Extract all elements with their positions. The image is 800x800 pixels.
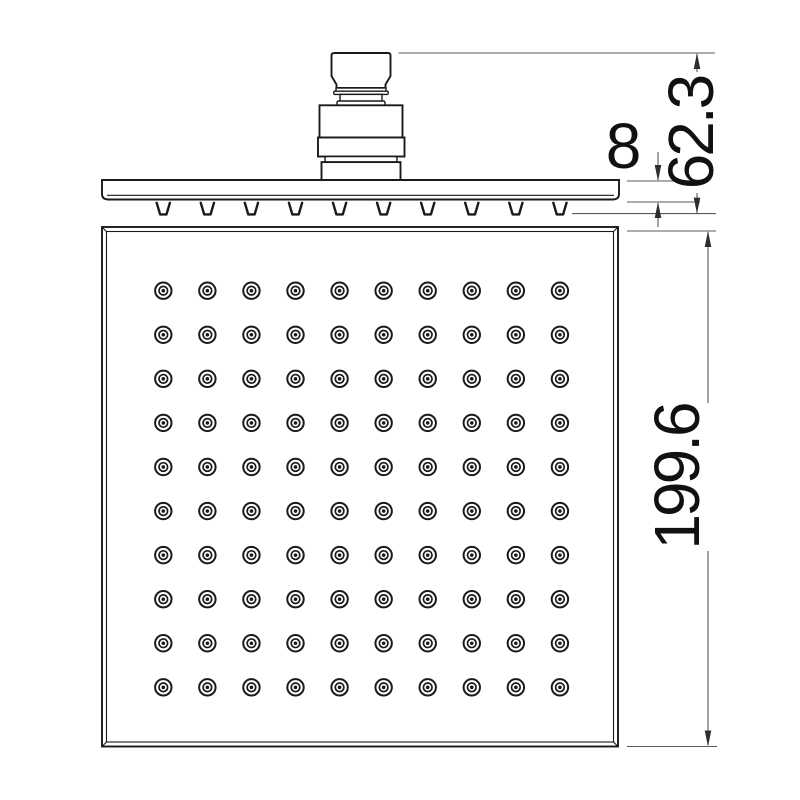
- nozzle: [162, 641, 166, 645]
- side-view: [102, 53, 619, 214]
- dim-label-plate-thickness: 8: [606, 114, 639, 178]
- nozzle: [426, 686, 430, 690]
- nozzle: [426, 289, 430, 293]
- technical-drawing-canvas: 62.3 8 199.6: [0, 0, 800, 800]
- nozzle: [558, 553, 562, 557]
- nozzle-tooth: [333, 203, 346, 215]
- nozzle: [426, 597, 430, 601]
- nozzle: [162, 686, 166, 690]
- nozzle: [514, 333, 518, 337]
- nozzle: [206, 641, 210, 645]
- nozzle: [382, 641, 386, 645]
- nozzle: [382, 686, 386, 690]
- arrow-up-icon: [694, 53, 701, 69]
- nozzle: [514, 465, 518, 469]
- nozzle: [338, 333, 342, 337]
- nozzle: [294, 509, 298, 513]
- nozzle: [382, 465, 386, 469]
- nozzle: [162, 333, 166, 337]
- nozzle: [338, 289, 342, 293]
- arrow-down-icon: [705, 731, 712, 747]
- nozzle: [294, 597, 298, 601]
- arrow-up-icon: [705, 231, 712, 247]
- nozzle: [294, 465, 298, 469]
- nozzle: [382, 377, 386, 381]
- nozzle: [426, 421, 430, 425]
- nozzle: [338, 377, 342, 381]
- nozzle: [294, 289, 298, 293]
- nozzle: [514, 421, 518, 425]
- nozzle: [558, 509, 562, 513]
- nozzle: [470, 597, 474, 601]
- nozzle: [470, 421, 474, 425]
- nozzle: [206, 377, 210, 381]
- nozzle: [250, 465, 254, 469]
- nozzle: [206, 509, 210, 513]
- nozzle: [558, 377, 562, 381]
- arrow-up-icon: [655, 202, 662, 218]
- nozzle: [162, 509, 166, 513]
- nozzle: [294, 333, 298, 337]
- nozzle: [426, 377, 430, 381]
- nozzle: [470, 289, 474, 293]
- nozzle: [558, 686, 562, 690]
- nozzle: [470, 509, 474, 513]
- nozzle: [250, 641, 254, 645]
- front-view: [102, 227, 618, 747]
- nozzle-tooth: [157, 203, 170, 215]
- nozzle: [514, 597, 518, 601]
- connector-body: [320, 105, 403, 137]
- nozzle: [514, 641, 518, 645]
- nozzle: [162, 377, 166, 381]
- nozzle-teeth-row: [157, 203, 567, 215]
- nozzle: [426, 641, 430, 645]
- nozzle: [206, 465, 210, 469]
- nozzle: [206, 289, 210, 293]
- nozzle: [250, 289, 254, 293]
- nozzle: [250, 333, 254, 337]
- nozzle: [338, 641, 342, 645]
- nozzle: [382, 509, 386, 513]
- nozzle: [514, 377, 518, 381]
- nozzle-tooth: [509, 203, 522, 215]
- nozzle: [470, 333, 474, 337]
- dim-label-face-size: 199.6: [645, 404, 709, 549]
- nozzle: [382, 289, 386, 293]
- nozzle: [382, 333, 386, 337]
- nozzle: [294, 686, 298, 690]
- nozzle: [470, 377, 474, 381]
- nozzle: [514, 289, 518, 293]
- nozzle: [162, 465, 166, 469]
- nozzle-tooth: [421, 203, 434, 215]
- nozzle: [338, 597, 342, 601]
- nozzle: [470, 465, 474, 469]
- nozzle: [206, 553, 210, 557]
- nozzle: [294, 377, 298, 381]
- connector-flange: [318, 138, 405, 157]
- nozzle: [250, 509, 254, 513]
- nozzle-tooth: [465, 203, 478, 215]
- nozzle: [558, 289, 562, 293]
- nozzle-tooth: [201, 203, 214, 215]
- nozzle: [470, 686, 474, 690]
- nozzle: [382, 553, 386, 557]
- nozzle: [558, 421, 562, 425]
- nozzle: [382, 421, 386, 425]
- nozzle: [426, 553, 430, 557]
- nozzle: [558, 641, 562, 645]
- nozzle: [294, 641, 298, 645]
- nozzle: [382, 597, 386, 601]
- nozzle: [470, 553, 474, 557]
- nozzle: [206, 597, 210, 601]
- nozzle: [250, 377, 254, 381]
- nozzle: [294, 421, 298, 425]
- nozzle: [338, 421, 342, 425]
- nozzle: [250, 686, 254, 690]
- nozzle-tooth: [289, 203, 302, 215]
- nozzle-tooth: [553, 203, 566, 215]
- nozzle: [250, 421, 254, 425]
- nozzle: [426, 509, 430, 513]
- nozzle: [338, 509, 342, 513]
- face-outer-border: [102, 227, 618, 747]
- nozzle: [514, 509, 518, 513]
- nozzle: [206, 421, 210, 425]
- connector-cap: [332, 53, 391, 88]
- dim-label-connector-height: 62.3: [659, 77, 723, 190]
- nozzle: [206, 333, 210, 337]
- nozzle: [514, 686, 518, 690]
- nozzle: [558, 597, 562, 601]
- nozzle: [338, 686, 342, 690]
- nozzle: [514, 553, 518, 557]
- nozzle: [470, 641, 474, 645]
- nozzle: [426, 465, 430, 469]
- nozzle: [162, 289, 166, 293]
- head-plate-profile: [102, 180, 619, 200]
- nozzle: [338, 553, 342, 557]
- nozzle: [250, 597, 254, 601]
- nozzle-tooth: [377, 203, 390, 215]
- nozzle: [162, 421, 166, 425]
- nozzle: [162, 597, 166, 601]
- connector-base: [322, 162, 401, 180]
- nozzle: [338, 465, 342, 469]
- nozzle: [426, 333, 430, 337]
- connector-neck: [340, 94, 382, 101]
- nozzle: [558, 333, 562, 337]
- arrow-down-icon: [694, 198, 701, 214]
- nozzle: [294, 553, 298, 557]
- nozzle: [162, 553, 166, 557]
- nozzle-tooth: [245, 203, 258, 215]
- nozzle: [250, 553, 254, 557]
- nozzle: [206, 686, 210, 690]
- nozzle: [558, 465, 562, 469]
